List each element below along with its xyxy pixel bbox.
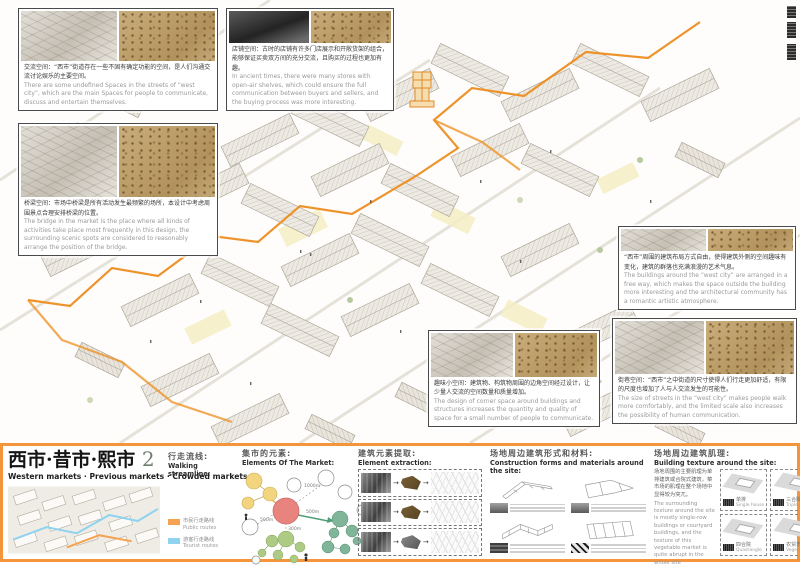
card-label-en: Vegetable market <box>786 548 800 553</box>
construction-detail <box>490 518 565 556</box>
interior-photo-image <box>229 11 309 43</box>
model-render-image <box>431 333 513 377</box>
annotation-street-scale: 街巷空间：“西市”之中街道的尺寸使得人们行走更加舒适，有限的尺度也增加了人与人交… <box>612 318 797 424</box>
section-element-extraction: 建筑元素提取: Element extraction: → → → → → → <box>356 448 484 557</box>
arrow-right-icon: → <box>393 479 399 487</box>
annotation-text-zh: 交流空间：“西市”街道存在一些不固有确定功能的空间，是人们沟通交流讨论娱乐的主要… <box>24 63 212 82</box>
site-photo <box>361 502 391 522</box>
line-drawing <box>431 531 479 553</box>
texture-isometric <box>773 517 800 541</box>
texture-card-single: 单排 Single house <box>720 469 767 511</box>
section-title-en: Elements Of The Market: <box>242 459 350 467</box>
section-title-en: Construction forms and materials around … <box>490 459 646 475</box>
market-elements-bubble-diagram: 500m 1000m 300m 500m <box>242 467 366 563</box>
presentation-board: 交流空间：“西市”街道存在一些不固有确定功能的空间，是人们沟通交流讨论娱乐的主要… <box>0 0 800 565</box>
streamline-legend: 行走流线: Walking streamline: 市民行走路线 Public … <box>166 448 236 557</box>
caption-micro-text <box>591 543 646 555</box>
annotation-bridge-space: 桥梁空间：市场中桥梁是所有活动发生最频繁的场所，本设计中考虑周围景点合理安排桥梁… <box>18 123 218 256</box>
texture-card-triple-courtyard: 三合院 Triple courtyard <box>770 469 800 511</box>
card-label-zh: 三合院 <box>786 497 800 503</box>
model-render-image <box>615 321 704 374</box>
texture-thumb <box>723 544 734 551</box>
caption-micro-text <box>591 502 646 514</box>
texture-thumb <box>773 544 784 551</box>
site-photo <box>361 473 391 493</box>
legend-label-en: Tourist routes <box>183 543 218 550</box>
arrow-right-icon: → <box>423 538 429 546</box>
corner-seal-mark <box>787 22 796 38</box>
texture-thumb <box>773 499 784 506</box>
texture-card-market: 农贸市场 Vegetable market <box>770 514 800 556</box>
annotation-text-en: The size of streets in the “west city” m… <box>618 395 791 420</box>
ancient-painting-image <box>515 333 597 377</box>
model-render-image <box>21 11 117 61</box>
page-subtitle: Western markets · Previous markets · Cro… <box>8 472 160 481</box>
section-construction-forms: 场地周边建筑形式和材料: Construction forms and mate… <box>488 448 648 557</box>
legend-item-public: 市民行走路线 Public routes <box>168 518 234 532</box>
title-zh: 西市·昔市·熙市 <box>8 449 135 471</box>
card-label-en: Single house <box>736 503 764 508</box>
section-title-zh: 场地周边建筑肌理: <box>654 449 792 459</box>
page-title: 西市·昔市·熙市 2 <box>8 449 160 471</box>
ancient-painting-image <box>311 11 391 43</box>
extracted-fragment <box>401 535 421 549</box>
texture-note-zh: 场地周围的主要肌理为单排建筑或合院式建筑，菜市场的肌理在整个场地中显得较为突兀。 <box>654 469 716 500</box>
wall-detail-drawing <box>490 518 565 542</box>
ancient-painting-image <box>119 11 215 61</box>
annotation-communication-space: 交流空间：“西市”街道存在一些不固有确定功能的空间，是人们沟通交流讨论娱乐的主要… <box>18 8 218 111</box>
reference-photo <box>490 503 508 513</box>
texture-isometric <box>723 472 764 496</box>
legend-label-zh: 游客行走路线 <box>183 537 218 544</box>
distance-label: 300m <box>288 526 302 532</box>
model-render-image <box>21 126 117 197</box>
legend-label-zh: 市民行走路线 <box>183 518 216 525</box>
section-title-en: Element extraction: <box>358 459 482 467</box>
extracted-fragment <box>401 476 421 490</box>
ancient-painting-image <box>119 126 215 197</box>
annotation-text-en: The bridge in the market is the place wh… <box>24 218 212 252</box>
public-route-swatch <box>168 519 180 525</box>
annotation-text-zh: 桥梁空间：市场中桥梁是所有活动发生最频繁的场所，本设计中考虑周围景点合理安排桥梁… <box>24 199 212 218</box>
line-drawing <box>431 501 479 523</box>
construction-detail <box>571 518 646 556</box>
arrow-right-icon: → <box>393 538 399 546</box>
title-number: 2 <box>142 447 155 471</box>
arrow-right-icon: → <box>393 508 399 516</box>
tourist-route-swatch <box>168 538 180 544</box>
extraction-row: → → <box>358 528 482 556</box>
annotation-text-zh: “西市”周围的建筑布局方式自由，使得建筑外侧的空间趣味有变化，建筑的群落也充满浪… <box>624 253 790 272</box>
extraction-row: → → <box>358 469 482 497</box>
construction-detail <box>571 477 646 515</box>
texture-isometric <box>773 472 800 496</box>
annotation-text-zh: 趣味小空间：建筑物、构筑物周围的边角空间经过设计，让少量人交流的空间数量和质量增… <box>434 379 594 398</box>
annotation-shop-space: 店铺空间：古时的店铺有许多门店展示和开敞货架的组合，能够保证买卖双方间的充分交流… <box>226 8 394 111</box>
annotation-text-zh: 店铺空间：古时的店铺有许多门店展示和开敞货架的组合，能够保证买卖双方间的充分交流… <box>232 45 388 74</box>
walking-streamline-map <box>8 484 160 556</box>
corner-seal-mark <box>787 6 796 18</box>
annotation-text-en: The design of corner space around buildi… <box>434 398 594 423</box>
distance-label: 500m <box>260 517 274 523</box>
section-market-elements: 集市的元素: Elements Of The Market: <box>240 448 352 557</box>
reference-photo <box>571 503 589 513</box>
central-market-bubble <box>273 498 299 524</box>
streamline-title-zh: 行走流线: <box>168 452 234 462</box>
footer-band: 西市·昔市·熙市 2 Western markets · Previous ma… <box>0 443 800 562</box>
line-drawing <box>431 472 479 494</box>
legend-label-en: Public routes <box>183 525 216 532</box>
texture-card-quadrangle: 四合院 Quadrangle <box>720 514 767 556</box>
card-label-en: Triple courtyard <box>786 503 800 508</box>
texture-isometric <box>723 517 764 541</box>
annotation-corner-space: 趣味小空间：建筑物、构筑物周围的边角空间经过设计，让少量人交流的空间数量和质量增… <box>428 330 600 427</box>
annotation-text-en: In ancient times, there were many stores… <box>232 73 388 107</box>
streamline-title-en: Walking streamline: <box>168 462 234 478</box>
ancient-painting-image <box>706 321 795 374</box>
caption-micro-text <box>510 543 565 555</box>
title-block: 西市·昔市·熙市 2 Western markets · Previous ma… <box>6 448 162 557</box>
corner-seal-mark <box>787 44 796 60</box>
roof-detail-drawing <box>490 477 565 501</box>
caption-micro-text <box>510 502 565 514</box>
model-render-image <box>621 229 706 251</box>
section-building-texture: 场地周边建筑肌理: Building texture around the si… <box>652 448 794 557</box>
section-title-zh: 集市的元素: <box>242 449 350 459</box>
section-title-zh: 场地周边建筑形式和材料: <box>490 449 646 459</box>
annotation-text-en: There are some undefined Spaces in the s… <box>24 82 212 107</box>
annotation-text-zh: 街巷空间：“西市”之中街道的尺寸使得人们行走更加舒适，有限的尺度也增加了人与人交… <box>618 376 791 395</box>
corrugated-material-photo <box>571 543 589 553</box>
texture-thumb <box>723 499 734 506</box>
roof-sheet-drawing <box>571 518 646 542</box>
legend-item-tourist: 游客行走路线 Tourist routes <box>168 537 234 551</box>
construction-detail <box>490 477 565 515</box>
section-title-en: Building texture around the site: <box>654 459 792 467</box>
distance-label: 1000m <box>304 483 321 489</box>
ancient-painting-image <box>708 229 793 251</box>
annotation-building-layout: “西市”周围的建筑布局方式自由，使得建筑外侧的空间趣味有变化，建筑的群落也充满浪… <box>618 226 796 310</box>
arrow-right-icon: → <box>423 479 429 487</box>
extracted-fragment <box>401 505 421 519</box>
section-title-zh: 建筑元素提取: <box>358 449 482 459</box>
brick-material-photo <box>490 543 508 553</box>
annotation-text-en: The buildings around the “west city” are… <box>624 272 790 306</box>
texture-note: 场地周围的主要肌理为单排建筑或合院式建筑，菜市场的肌理在整个场地中显得较为突兀。… <box>654 469 716 556</box>
extraction-row: → → <box>358 499 482 527</box>
site-photo <box>361 532 391 552</box>
texture-note-en: The surrounding texture around the site … <box>654 501 716 565</box>
card-label-en: Quadrangle <box>736 548 762 553</box>
roof-detail-drawing <box>571 477 646 501</box>
arrow-right-icon: → <box>423 508 429 516</box>
card-label-zh: 农贸市场 <box>786 542 800 548</box>
distance-label: 500m <box>306 509 320 515</box>
